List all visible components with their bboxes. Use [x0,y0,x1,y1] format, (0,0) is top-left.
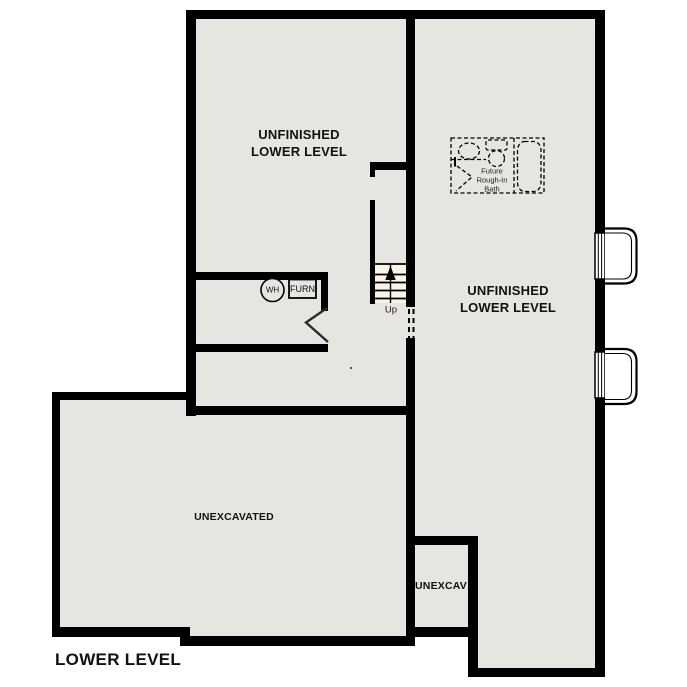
floor-plan-drawing [0,0,687,687]
wall-unexcavated-top [52,392,192,400]
window-glyph-bottom [595,352,605,398]
furnace-box [289,280,316,299]
wall-utility-bottom [191,344,328,352]
stair-treads [375,263,406,303]
wall-right-3 [595,398,605,677]
wall-small-room-right [468,536,478,677]
window-bottom-group [595,349,637,404]
wall-leftroom-bottom [186,406,415,415]
wall-left-upper [186,10,196,416]
wall-bottom-right-room [468,668,605,677]
wall-unexcavated-bottom [52,627,190,637]
wall-right-1 [595,10,605,233]
wall-right-2 [595,279,605,352]
wall-lower-bottom [180,636,415,646]
plan-dot [350,367,352,369]
wall-top [186,10,605,19]
wall-unexcavated-left [52,392,60,637]
floor-plan: UNFINISHED LOWER LEVEL UNFINISHED LOWER … [0,0,687,687]
window-top-group [595,229,637,284]
wall-stair-top-stub [370,170,375,177]
wall-utility-right [321,280,328,311]
wall-center-upper [406,10,415,307]
wall-stair-left [370,200,375,304]
wall-small-room-bottom [406,627,468,637]
water-heater-circle [261,279,284,302]
window-glyph-top [595,233,605,279]
floor-footprint [52,10,605,677]
wall-center-lower [406,338,415,646]
wall-small-room-top [406,536,478,545]
wall-stair-top [370,162,415,170]
